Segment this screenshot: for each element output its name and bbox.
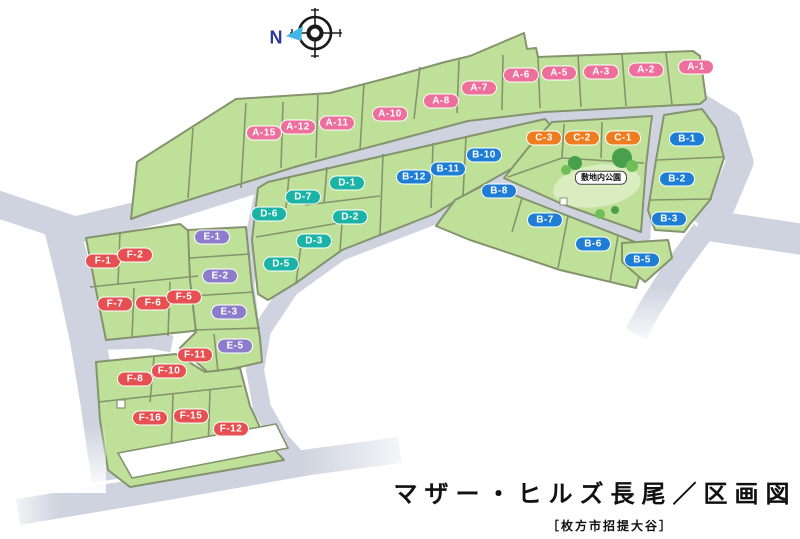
lot-badge-f-15[interactable]: F-15: [173, 409, 209, 424]
lot-badge-b-6[interactable]: B-6: [575, 237, 611, 252]
lot-badge-e-2[interactable]: E-2: [202, 269, 238, 284]
lot-badge-b-2[interactable]: B-2: [659, 172, 695, 187]
lot-badge-d-3[interactable]: D-3: [296, 234, 332, 249]
lot-badge-d-7[interactable]: D-7: [285, 190, 321, 205]
lot-badge-a-5[interactable]: A-5: [541, 66, 577, 81]
lot-badge-a-2[interactable]: A-2: [628, 63, 664, 78]
park-label: 敷地内公園: [575, 171, 627, 185]
lot-badge-b-12[interactable]: B-12: [396, 170, 432, 185]
lot-badge-d-1[interactable]: D-1: [329, 176, 365, 191]
page-subtitle: ［枚方市招提大谷］: [470, 516, 750, 534]
compass-north-label: N: [270, 28, 283, 49]
page-title: マザー・ヒルズ長尾／区画図: [390, 477, 800, 505]
lot-badge-f-1[interactable]: F-1: [85, 254, 121, 269]
lot-badge-a-10[interactable]: A-10: [372, 107, 408, 122]
lot-badge-layer: A-1A-2A-3A-5A-6A-7A-8A-10A-11A-12A-15C-3…: [0, 0, 800, 539]
lot-badge-a-11[interactable]: A-11: [319, 116, 355, 131]
lot-badge-b-7[interactable]: B-7: [527, 213, 563, 228]
lot-badge-f-8[interactable]: F-8: [117, 372, 153, 387]
lot-badge-f-11[interactable]: F-11: [177, 348, 213, 363]
lot-badge-a-6[interactable]: A-6: [503, 68, 539, 83]
lot-badge-a-15[interactable]: A-15: [246, 126, 282, 141]
lot-badge-f-2[interactable]: F-2: [117, 248, 153, 263]
lot-badge-f-5[interactable]: F-5: [166, 290, 202, 305]
lot-badge-b-11[interactable]: B-11: [430, 162, 466, 177]
lot-badge-f-16[interactable]: F-16: [132, 411, 168, 426]
lot-badge-d-5[interactable]: D-5: [263, 257, 299, 272]
lot-badge-b-8[interactable]: B-8: [481, 184, 517, 199]
lot-badge-a-12[interactable]: A-12: [280, 120, 316, 135]
lot-badge-d-2[interactable]: D-2: [332, 210, 368, 225]
lot-badge-f-7[interactable]: F-7: [97, 297, 133, 312]
lot-badge-a-8[interactable]: A-8: [423, 94, 459, 109]
lot-badge-e-3[interactable]: E-3: [211, 305, 247, 320]
lot-badge-c-3[interactable]: C-3: [526, 131, 562, 146]
lot-badge-a-7[interactable]: A-7: [461, 81, 497, 96]
lot-badge-b-1[interactable]: B-1: [669, 132, 705, 147]
lot-badge-a-1[interactable]: A-1: [678, 60, 714, 75]
lot-badge-f-10[interactable]: F-10: [151, 364, 187, 379]
lot-badge-b-10[interactable]: B-10: [466, 148, 502, 163]
lot-badge-c-1[interactable]: C-1: [605, 131, 641, 146]
lot-badge-a-3[interactable]: A-3: [583, 65, 619, 80]
lot-badge-e-1[interactable]: E-1: [194, 230, 230, 245]
lot-badge-e-5[interactable]: E-5: [217, 339, 253, 354]
lot-badge-d-6[interactable]: D-6: [251, 207, 287, 222]
lot-badge-f-12[interactable]: F-12: [213, 422, 249, 437]
lot-badge-b-5[interactable]: B-5: [624, 253, 660, 268]
lot-map-canvas: A-1A-2A-3A-5A-6A-7A-8A-10A-11A-12A-15C-3…: [0, 0, 800, 539]
lot-badge-b-3[interactable]: B-3: [651, 212, 687, 227]
lot-badge-c-2[interactable]: C-2: [564, 131, 600, 146]
